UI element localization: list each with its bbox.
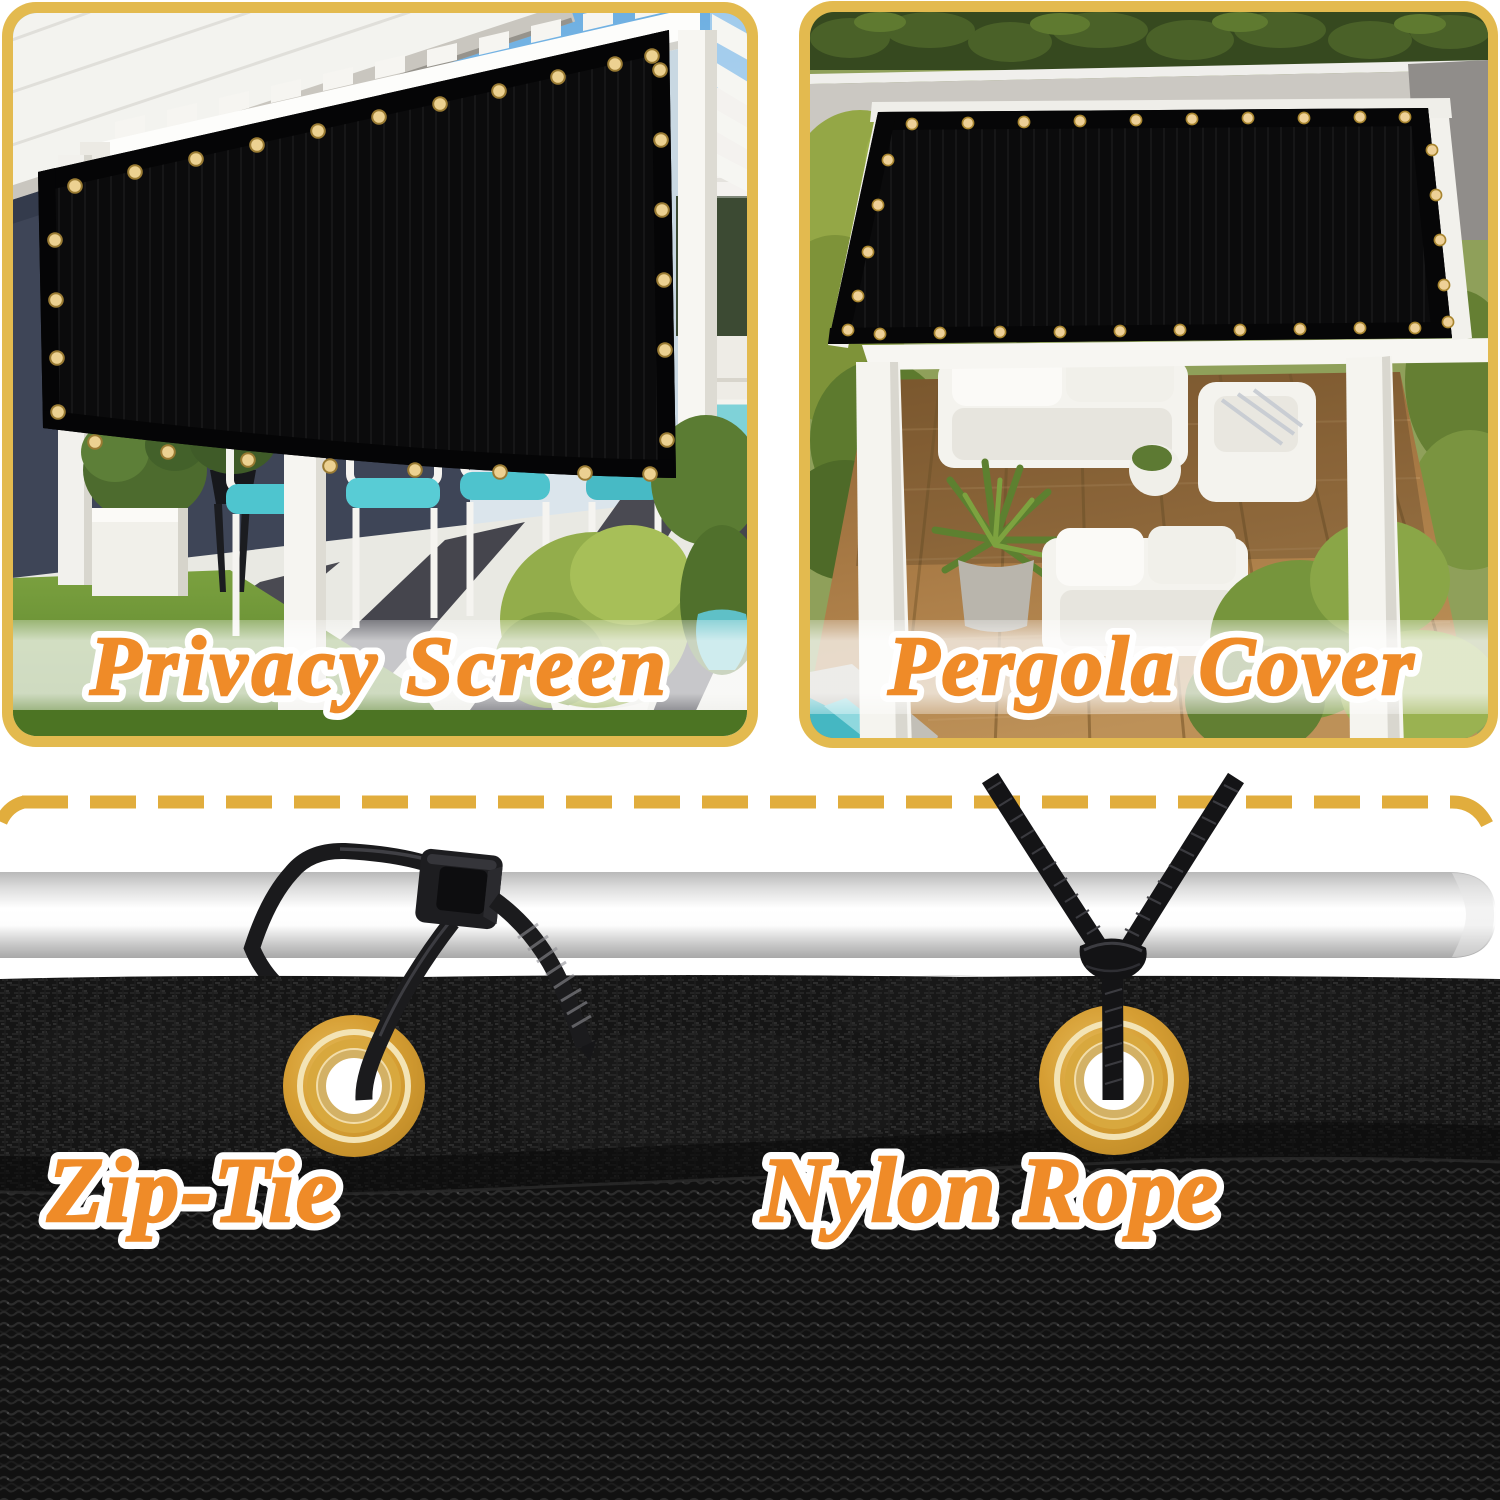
svg-text:Privacy Screen: Privacy Screen — [89, 620, 670, 713]
svg-text:Pergola Cover: Pergola Cover — [887, 620, 1416, 713]
svg-text:Nylon Rope: Nylon Rope — [760, 1139, 1218, 1241]
svg-text:Zip-Tie: Zip-Tie — [46, 1139, 339, 1241]
